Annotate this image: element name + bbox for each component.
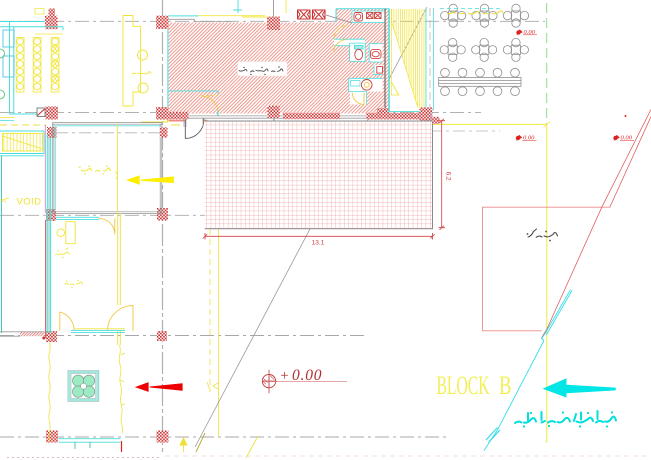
svg-text:13.1: 13.1 <box>312 240 325 247</box>
svg-text:BLOCK: BLOCK <box>437 371 490 400</box>
svg-text:VOID: VOID <box>17 197 42 208</box>
svg-text:B: B <box>499 371 512 400</box>
svg-text:6.2: 6.2 <box>445 171 452 180</box>
